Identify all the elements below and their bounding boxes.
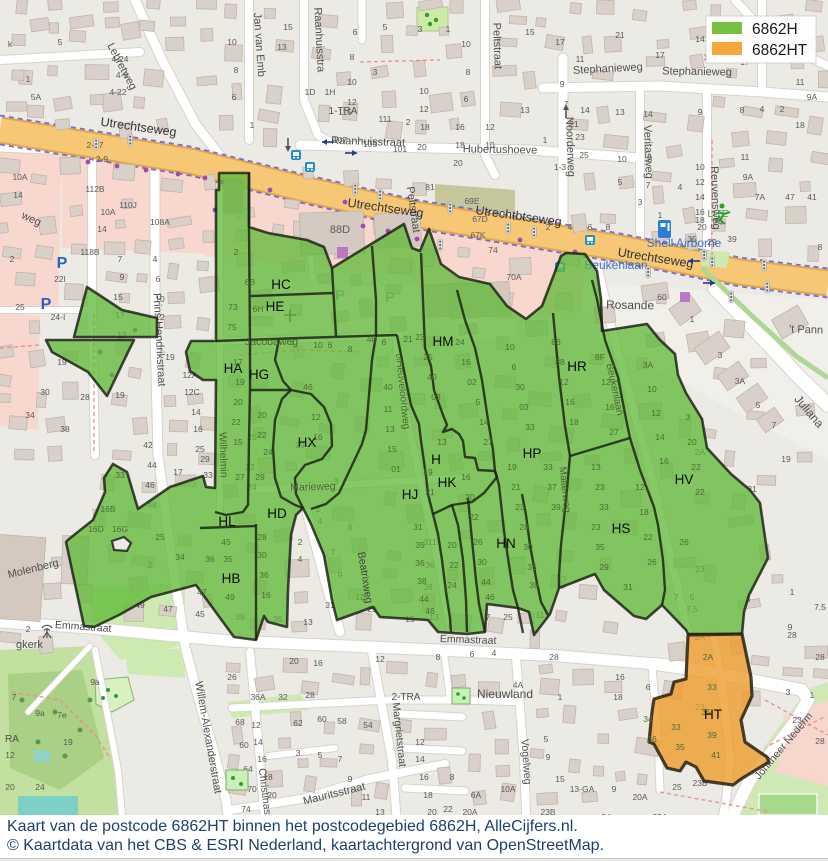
svg-text:6H: 6H (253, 304, 264, 314)
svg-text:3: 3 (296, 748, 301, 758)
svg-text:16: 16 (615, 672, 625, 682)
svg-text:18: 18 (613, 692, 623, 702)
svg-text:47: 47 (163, 604, 173, 614)
svg-text:22: 22 (449, 560, 459, 570)
svg-text:3: 3 (373, 67, 378, 77)
svg-text:6: 6 (156, 274, 161, 284)
svg-text:20: 20 (453, 158, 463, 168)
svg-text:13: 13 (520, 105, 530, 115)
svg-text:HG: HG (249, 367, 269, 382)
svg-text:28: 28 (305, 690, 315, 700)
svg-text:47: 47 (197, 587, 207, 597)
svg-text:HB: HB (222, 571, 241, 586)
svg-text:10: 10 (347, 77, 357, 87)
svg-text:Marieweg: Marieweg (290, 480, 336, 494)
svg-text:40: 40 (427, 372, 437, 382)
svg-text:22: 22 (643, 532, 653, 542)
svg-text:01: 01 (391, 464, 401, 474)
svg-text:21: 21 (425, 487, 435, 497)
svg-text:58: 58 (337, 716, 347, 726)
svg-text:10A: 10A (100, 207, 115, 217)
svg-text:HP: HP (523, 446, 542, 461)
svg-text:3: 3 (638, 197, 643, 207)
svg-text:4-22: 4-22 (109, 87, 126, 97)
svg-text:12C: 12C (184, 387, 200, 397)
svg-text:39: 39 (727, 234, 737, 244)
svg-text:6: 6 (464, 94, 469, 104)
svg-text:HN: HN (496, 536, 516, 551)
svg-text:16: 16 (261, 590, 271, 600)
svg-text:4-9: 4-9 (116, 70, 129, 80)
svg-text:22: 22 (695, 487, 705, 497)
svg-text:110J: 110J (119, 200, 137, 210)
svg-text:13: 13 (437, 437, 447, 447)
svg-text:10: 10 (505, 342, 515, 352)
svg-text:23: 23 (591, 522, 601, 532)
svg-text:HT: HT (704, 707, 722, 722)
svg-text:19: 19 (423, 467, 433, 477)
svg-text:29: 29 (599, 562, 609, 572)
svg-text:1H: 1H (325, 87, 336, 97)
svg-text:1: 1 (558, 692, 563, 702)
svg-text:35: 35 (595, 542, 605, 552)
svg-text:14: 14 (655, 432, 665, 442)
svg-text:5A: 5A (31, 92, 42, 102)
svg-text:HE: HE (266, 299, 285, 314)
svg-text:8F: 8F (595, 352, 605, 362)
svg-text:14: 14 (695, 192, 705, 202)
svg-text:108A: 108A (150, 217, 170, 227)
svg-text:1: 1 (790, 587, 795, 597)
svg-text:12: 12 (601, 377, 611, 387)
svg-text:46: 46 (485, 592, 495, 602)
svg-text:44: 44 (419, 594, 429, 604)
svg-text:4-24: 4-24 (111, 54, 128, 64)
svg-text:36: 36 (415, 558, 425, 568)
svg-text:12: 12 (635, 482, 645, 492)
svg-text:17: 17 (555, 37, 565, 47)
svg-text:38: 38 (60, 424, 70, 434)
svg-text:11: 11 (362, 792, 371, 802)
svg-text:11: 11 (796, 77, 805, 87)
svg-text:68: 68 (235, 717, 245, 727)
svg-text:49: 49 (225, 592, 235, 602)
svg-text:2: 2 (780, 104, 785, 114)
svg-text:1: 1 (543, 135, 548, 145)
svg-text:14: 14 (643, 109, 653, 119)
svg-text:22: 22 (691, 462, 701, 472)
svg-text:69E: 69E (464, 196, 479, 206)
svg-text:14: 14 (415, 754, 425, 764)
svg-text:18: 18 (263, 772, 273, 782)
svg-text:3: 3 (418, 24, 423, 34)
svg-text:23: 23 (792, 715, 802, 725)
svg-text:12: 12 (485, 122, 495, 132)
svg-text:18: 18 (795, 120, 805, 130)
svg-text:33: 33 (115, 470, 125, 480)
svg-text:28: 28 (257, 532, 267, 542)
svg-text:1-3: 1-3 (554, 162, 567, 172)
svg-text:29: 29 (255, 472, 265, 482)
svg-text:12: 12 (251, 720, 261, 730)
svg-text:34: 34 (643, 714, 653, 724)
svg-text:24: 24 (35, 782, 45, 792)
svg-text:Hubertushoeve: Hubertushoeve (463, 143, 538, 156)
svg-text:6: 6 (646, 682, 651, 692)
svg-text:8: 8 (450, 772, 455, 782)
svg-text:33: 33 (525, 422, 535, 432)
svg-text:9A: 9A (743, 172, 754, 182)
svg-text:9a: 9a (90, 677, 100, 687)
svg-text:16G: 16G (112, 524, 128, 534)
svg-text:24: 24 (455, 337, 465, 347)
svg-text:3: 3 (786, 687, 791, 697)
svg-text:33: 33 (707, 682, 717, 692)
svg-text:36: 36 (647, 734, 657, 744)
svg-text:26: 26 (647, 557, 657, 567)
svg-text:20: 20 (233, 397, 243, 407)
svg-text:23: 23 (515, 502, 525, 512)
svg-text:HL: HL (218, 514, 236, 529)
svg-text:42: 42 (143, 440, 153, 450)
svg-text:1: 1 (810, 690, 815, 700)
svg-text:21: 21 (569, 119, 579, 129)
svg-text:25: 25 (579, 150, 589, 160)
svg-text:Rosande: Rosande (606, 298, 655, 313)
svg-text:7,5: 7,5 (814, 602, 826, 612)
svg-text:19: 19 (235, 377, 245, 387)
svg-text:Nieuwland: Nieuwland (477, 687, 533, 701)
svg-text:22: 22 (443, 804, 453, 814)
svg-text:10A: 10A (12, 172, 27, 182)
svg-text:15: 15 (555, 774, 565, 784)
svg-text:12: 12 (415, 737, 425, 747)
svg-text:6: 6 (512, 362, 517, 372)
svg-text:81: 81 (425, 182, 435, 192)
svg-text:40: 40 (383, 382, 393, 392)
svg-text:14: 14 (695, 34, 705, 44)
svg-text:28: 28 (519, 522, 529, 532)
svg-text:24: 24 (447, 580, 457, 590)
svg-text:9A: 9A (807, 92, 818, 102)
svg-text:10: 10 (227, 37, 237, 47)
svg-text:35: 35 (223, 554, 233, 564)
svg-text:36: 36 (259, 570, 269, 580)
svg-text:13: 13 (591, 462, 601, 472)
svg-text:HA: HA (224, 361, 243, 376)
svg-text:75: 75 (227, 322, 237, 332)
svg-text:16: 16 (455, 122, 465, 132)
svg-text:9: 9 (120, 272, 125, 282)
svg-text:12: 12 (375, 654, 385, 664)
svg-text:23: 23 (595, 482, 605, 492)
svg-text:18: 18 (455, 140, 465, 150)
svg-text:Veritasweg: Veritasweg (641, 125, 655, 179)
svg-text:47: 47 (785, 192, 795, 202)
svg-text:11: 11 (576, 54, 585, 64)
svg-text:60: 60 (657, 292, 667, 302)
svg-text:13: 13 (277, 42, 287, 52)
svg-text:9: 9 (560, 79, 565, 89)
svg-text:37: 37 (547, 482, 557, 492)
svg-text:27: 27 (235, 472, 245, 482)
svg-text:9: 9 (546, 752, 551, 762)
svg-text:13: 13 (615, 107, 625, 117)
svg-text:7: 7 (338, 754, 343, 764)
svg-text:8: 8 (818, 242, 823, 252)
svg-text:20: 20 (417, 142, 427, 152)
svg-text:2: 2 (26, 624, 31, 634)
svg-text:12: 12 (311, 412, 321, 422)
svg-text:12: 12 (347, 97, 357, 107)
svg-text:8: 8 (740, 105, 745, 115)
svg-text:gkerk: gkerk (16, 639, 43, 651)
svg-text:HV: HV (675, 472, 694, 487)
svg-text:2: 2 (406, 117, 411, 127)
svg-text:6: 6 (470, 649, 475, 659)
svg-text:3: 3 (290, 337, 295, 347)
svg-text:17: 17 (173, 467, 183, 477)
svg-text:101: 101 (393, 144, 407, 154)
svg-text:1: 1 (250, 120, 255, 130)
svg-text:12: 12 (5, 750, 15, 760)
svg-text:HX: HX (298, 435, 317, 450)
svg-text:20: 20 (289, 656, 299, 666)
svg-text:10: 10 (617, 154, 627, 164)
svg-text:2: 2 (10, 254, 15, 264)
svg-text:115: 115 (338, 107, 352, 117)
svg-text:6: 6 (232, 92, 237, 102)
svg-text:02: 02 (467, 377, 477, 387)
svg-text:5: 5 (544, 734, 549, 744)
svg-text:74: 74 (488, 245, 498, 255)
svg-text:6: 6 (328, 340, 333, 350)
svg-text:27: 27 (609, 427, 619, 437)
svg-text:15: 15 (387, 444, 397, 454)
svg-text:21: 21 (403, 334, 413, 344)
svg-text:8: 8 (648, 154, 653, 164)
svg-text:8: 8 (466, 67, 471, 77)
svg-text:20A: 20A (632, 792, 647, 802)
svg-text:44: 44 (147, 460, 157, 470)
svg-text:6A: 6A (471, 790, 482, 800)
svg-text:5: 5 (756, 400, 761, 410)
svg-text:RA: RA (5, 734, 19, 745)
svg-text:3A: 3A (735, 376, 746, 386)
svg-text:13: 13 (385, 424, 395, 434)
svg-text:31: 31 (623, 582, 633, 592)
svg-text:14: 14 (191, 407, 201, 417)
svg-text:4B: 4B (367, 334, 378, 344)
svg-text:30: 30 (40, 387, 50, 397)
svg-text:11: 11 (384, 404, 393, 414)
svg-text:19: 19 (63, 737, 73, 747)
svg-text:41: 41 (807, 192, 817, 202)
svg-text:24-I: 24-I (51, 312, 66, 322)
svg-text:10: 10 (485, 140, 495, 150)
svg-text:38: 38 (529, 580, 539, 590)
svg-text:20: 20 (447, 540, 457, 550)
svg-text:22: 22 (469, 512, 479, 522)
svg-text:14: 14 (13, 190, 23, 200)
svg-text:7: 7 (646, 180, 651, 190)
svg-text:112B: 112B (85, 184, 105, 194)
svg-text:10: 10 (419, 86, 429, 96)
svg-text:67D: 67D (472, 214, 488, 224)
svg-text:16: 16 (461, 357, 471, 367)
svg-text:03: 03 (519, 402, 529, 412)
svg-text:20: 20 (5, 782, 15, 792)
svg-text:8: 8 (348, 344, 353, 354)
svg-text:44: 44 (481, 577, 491, 587)
svg-text:33: 33 (599, 502, 609, 512)
svg-text:34: 34 (175, 552, 185, 562)
svg-text:19: 19 (115, 390, 125, 400)
svg-text:14: 14 (97, 224, 107, 234)
svg-text:2A: 2A (703, 652, 714, 662)
svg-text:111: 111 (379, 114, 392, 124)
svg-text:35: 35 (675, 742, 685, 752)
svg-text:118B: 118B (80, 247, 100, 257)
svg-text:6862H: 6862H (752, 21, 798, 38)
svg-text:4A: 4A (513, 680, 524, 690)
svg-text:88: 88 (555, 357, 565, 367)
svg-text:54: 54 (363, 720, 373, 730)
svg-text:5: 5 (58, 37, 63, 47)
svg-text:88D: 88D (330, 224, 350, 236)
svg-text:H: H (431, 452, 441, 467)
svg-text:18: 18 (695, 215, 705, 225)
svg-text:Stephanieweg: Stephanieweg (662, 65, 732, 78)
svg-text:HD: HD (267, 506, 287, 521)
svg-text:5: 5 (318, 750, 323, 760)
svg-text:1: 1 (690, 314, 695, 324)
svg-text:22I: 22I (54, 274, 66, 284)
svg-text:16D: 16D (88, 524, 104, 534)
svg-text:24: 24 (263, 447, 273, 457)
svg-text:1D: 1D (305, 87, 316, 97)
svg-text:12: 12 (695, 177, 705, 187)
svg-text:38: 38 (417, 576, 427, 586)
svg-text:10: 10 (695, 162, 705, 172)
svg-text:15: 15 (283, 22, 293, 32)
svg-text:3: 3 (718, 350, 723, 360)
svg-text:35: 35 (687, 234, 697, 244)
svg-text:30: 30 (523, 542, 533, 552)
svg-text:15: 15 (113, 292, 123, 302)
svg-text:16B: 16B (100, 504, 115, 514)
svg-text:18: 18 (420, 122, 430, 132)
svg-text:2: 2 (546, 222, 551, 232)
svg-text:29: 29 (707, 237, 717, 247)
svg-text:70: 70 (247, 784, 257, 794)
svg-text:6862HT: 6862HT (752, 42, 808, 59)
svg-text:4: 4 (760, 104, 765, 114)
svg-text:18: 18 (423, 790, 433, 800)
svg-text:19: 19 (507, 462, 517, 472)
svg-text:10A: 10A (500, 784, 515, 794)
svg-text:9: 9 (348, 774, 353, 784)
svg-text:6B: 6B (245, 277, 256, 287)
svg-text:17: 17 (655, 50, 665, 60)
svg-text:34: 34 (25, 410, 35, 420)
svg-text:10: 10 (155, 294, 165, 304)
svg-text:46: 46 (425, 606, 435, 616)
svg-text:8: 8 (234, 65, 239, 75)
svg-text:26: 26 (227, 672, 237, 682)
svg-text:25: 25 (672, 782, 682, 792)
svg-text:22: 22 (257, 430, 267, 440)
svg-text:9a: 9a (35, 708, 45, 718)
svg-text:45: 45 (195, 609, 205, 619)
svg-text:12: 12 (419, 104, 429, 114)
svg-text:35: 35 (415, 540, 425, 550)
svg-text:7: 7 (772, 420, 777, 430)
svg-text:30: 30 (477, 557, 487, 567)
svg-text:2: 2 (298, 537, 303, 547)
svg-text:7e: 7e (57, 710, 67, 720)
svg-text:105: 105 (363, 139, 377, 149)
svg-text:26: 26 (473, 537, 483, 547)
svg-text:16: 16 (193, 424, 203, 434)
svg-text:16: 16 (461, 472, 471, 482)
svg-text:16: 16 (313, 658, 323, 668)
svg-text:20: 20 (465, 492, 475, 502)
svg-text:30: 30 (515, 382, 525, 392)
svg-text:14: 14 (580, 105, 590, 115)
svg-text:16: 16 (659, 456, 669, 466)
svg-text:9: 9 (612, 784, 617, 794)
svg-text:10: 10 (461, 39, 471, 49)
svg-text:46: 46 (145, 480, 155, 490)
svg-text:23: 23 (575, 132, 585, 142)
svg-text:16: 16 (257, 754, 267, 764)
svg-text:10: 10 (313, 340, 323, 350)
svg-text:20: 20 (267, 790, 277, 800)
svg-text:25: 25 (15, 302, 25, 312)
svg-text:32: 32 (278, 692, 288, 702)
svg-text:39: 39 (551, 502, 561, 512)
svg-text:15: 15 (525, 27, 535, 37)
svg-text:20: 20 (687, 437, 697, 447)
svg-text:6: 6 (353, 27, 358, 37)
svg-text:74: 74 (241, 804, 251, 814)
svg-text:P: P (57, 255, 68, 272)
svg-text:HC: HC (271, 277, 291, 292)
svg-text:4: 4 (153, 254, 158, 264)
svg-text:HJ: HJ (402, 487, 419, 502)
svg-text:27: 27 (483, 437, 493, 447)
svg-text:19: 19 (781, 454, 791, 464)
svg-text:31: 31 (413, 522, 423, 532)
svg-text:67K: 67K (470, 230, 485, 240)
svg-text:36: 36 (205, 554, 215, 564)
svg-text:8: 8 (436, 652, 441, 662)
svg-text:33: 33 (671, 722, 681, 732)
svg-text:13: 13 (303, 617, 313, 627)
svg-text:16: 16 (605, 402, 615, 412)
svg-text:7: 7 (118, 254, 123, 264)
svg-text:14: 14 (479, 417, 489, 427)
svg-text:12: 12 (559, 377, 569, 387)
svg-text:16: 16 (565, 397, 575, 407)
svg-text:28: 28 (549, 652, 559, 662)
svg-text:28: 28 (80, 392, 90, 402)
svg-text:28: 28 (787, 630, 797, 640)
svg-text:6: 6 (382, 337, 387, 347)
svg-text:25: 25 (195, 444, 205, 454)
svg-text:30: 30 (257, 550, 267, 560)
